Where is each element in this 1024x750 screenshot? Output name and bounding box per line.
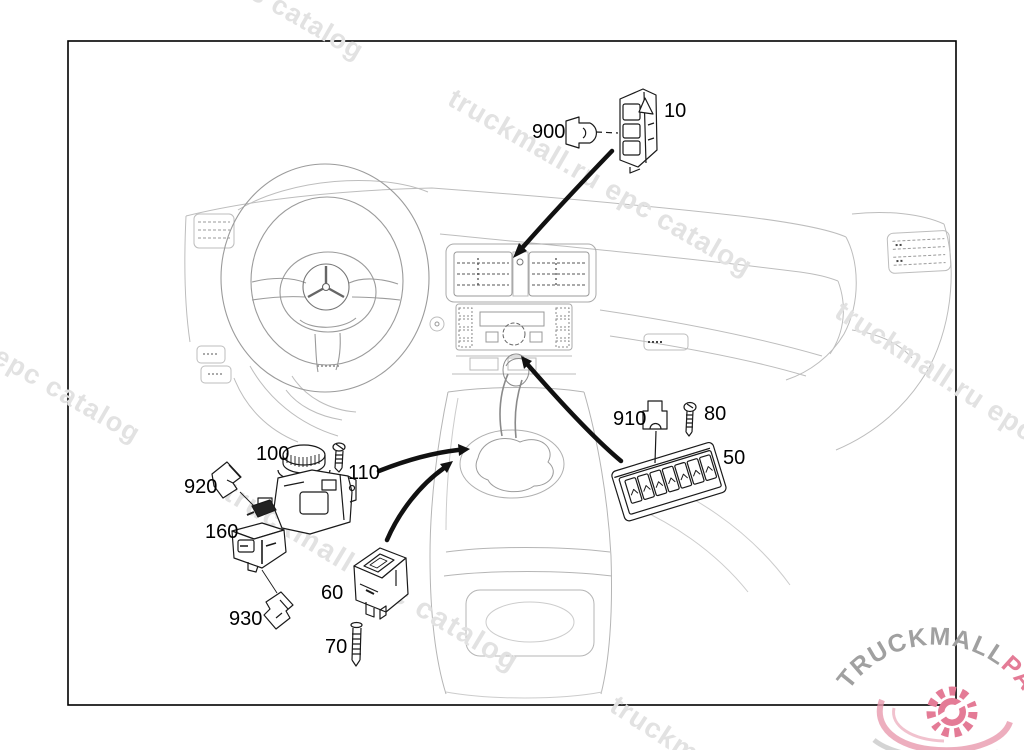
callout-arrows	[379, 151, 621, 540]
arrow-50-to-console	[528, 365, 621, 461]
radio-unit	[456, 304, 572, 350]
part-930-connector	[264, 592, 293, 629]
part-label-900: 900	[532, 121, 565, 143]
catalog-diagram-page: truckmall epc catalog truckmall.ru epc c…	[0, 0, 1024, 750]
part-70-screw	[351, 623, 362, 667]
leader-line-160-930	[262, 570, 277, 593]
part-900-connector	[566, 117, 596, 148]
leader-line-900-10	[596, 132, 618, 133]
part-label-110: 110	[348, 462, 380, 484]
watermark-text: truckmall.ru epc catalog	[605, 689, 912, 750]
watermark-layer: truckmall epc catalog truckmall.ru epc c…	[0, 0, 1024, 750]
watermark-text: truckmall epc catalog	[0, 269, 146, 449]
mercedes-star-icon	[303, 264, 349, 310]
part-label-910: 910	[613, 408, 646, 430]
part-label-920: 920	[184, 476, 217, 498]
dashboard-illustration	[185, 180, 951, 698]
part-label-10: 10	[664, 100, 686, 122]
part-label-60: 60	[321, 582, 343, 604]
gear-icon	[928, 691, 982, 733]
arrow-60-to-shifter	[387, 468, 444, 540]
brand-logo: TRUCKMALLPARTS	[832, 622, 1024, 750]
part-10-switch	[620, 89, 657, 173]
brand-logo-text: TRUCKMALLPARTS	[832, 622, 1024, 745]
watermark-text: truckmall.ru epc catalog	[830, 295, 1024, 510]
part-label-930: 930	[229, 608, 262, 630]
watermark-text: truckmall epc catalog	[97, 0, 369, 66]
steering-wheel	[221, 164, 429, 392]
part-label-80: 80	[704, 403, 726, 425]
part-label-160: 160	[205, 521, 238, 543]
brand-text-primary: TRUCKMALL	[832, 622, 1012, 694]
part-110-screw	[333, 443, 345, 472]
part-50-switch-panel	[611, 441, 728, 522]
parts-diagram-svg: truckmall epc catalog truckmall.ru epc c…	[0, 0, 1024, 750]
part-910-connector	[643, 401, 667, 429]
part-label-100: 100	[256, 443, 289, 465]
part-label-70: 70	[325, 636, 347, 658]
part-label-50: 50	[723, 447, 745, 469]
part-80-screw	[684, 403, 696, 437]
part-160-switch-module	[232, 523, 286, 572]
